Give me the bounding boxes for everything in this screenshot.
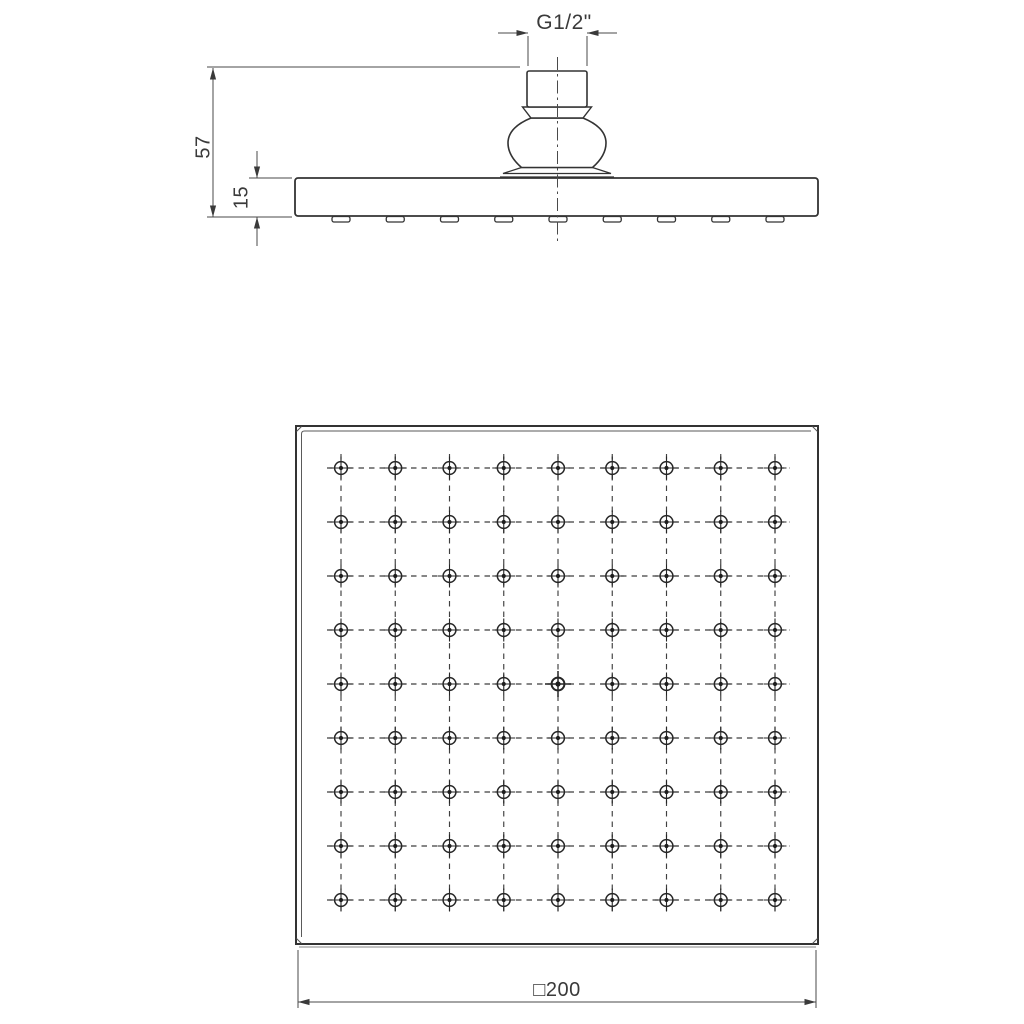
head-plate-side [295,178,818,216]
nozzle [492,781,515,804]
nozzle [384,673,407,696]
thread-arrow-left [517,30,529,36]
face-width-label: □200 [533,979,580,1001]
nozzle [655,565,678,588]
nozzle [384,835,407,858]
nozzle [330,619,353,642]
nozzle [709,781,732,804]
nozzle [438,565,461,588]
nozzle [601,457,624,480]
nozzle [438,457,461,480]
nozzle [764,727,787,750]
nozzle [438,511,461,534]
nozzle [547,835,570,858]
nozzle [547,457,570,480]
thickness-arrow-bottom [254,217,260,229]
side-nozzle-bump [495,217,513,223]
height-arrow-top [210,68,216,80]
nozzle [709,619,732,642]
nozzle [492,457,515,480]
nozzle [438,673,461,696]
nozzle-grid [330,457,787,912]
nozzle [764,565,787,588]
nozzle [492,835,515,858]
nozzle [655,457,678,480]
nozzle [384,457,407,480]
nozzle [545,671,571,697]
nozzle [764,619,787,642]
side-nozzle-bump [603,217,621,223]
nozzle [492,889,515,912]
nozzle [709,511,732,534]
side-nozzle-bump [766,217,784,223]
nozzle [330,781,353,804]
nozzle [655,727,678,750]
nozzle [601,835,624,858]
nozzle [709,673,732,696]
nozzle [438,781,461,804]
nozzle [655,781,678,804]
nozzle [764,511,787,534]
nozzle [655,835,678,858]
overall-height-label: 57 [193,135,215,158]
nozzle [547,727,570,750]
head-thickness-label: 15 [231,186,253,209]
nozzle [764,781,787,804]
bottom-face-view [296,426,818,947]
nozzle [384,727,407,750]
thickness-arrow-top [254,167,260,179]
nozzle [601,619,624,642]
nozzle [384,619,407,642]
width-arrow-right [805,999,817,1005]
nozzle [330,565,353,588]
nozzle [709,727,732,750]
nozzle [547,565,570,588]
nozzle [492,565,515,588]
side-nozzle-bump [386,217,404,223]
nozzle [492,619,515,642]
nozzle [655,889,678,912]
nozzle [601,727,624,750]
dimension-head-thickness: 15 [231,151,293,246]
nozzle [601,781,624,804]
width-arrow-left [298,999,310,1005]
nozzle [764,835,787,858]
nozzle [330,889,353,912]
drawing-page: G1/2" 57 15 [0,0,1024,1024]
nozzle [330,727,353,750]
nozzle [384,781,407,804]
nozzle [655,673,678,696]
nozzle [438,835,461,858]
nozzle [547,889,570,912]
nozzle [330,673,353,696]
nozzle [601,565,624,588]
nozzle [547,619,570,642]
technical-drawing-canvas: G1/2" 57 15 [0,0,1024,1024]
nozzle [384,565,407,588]
nozzle [384,511,407,534]
thread-size-label: G1/2" [536,11,591,34]
nozzle [655,511,678,534]
nozzle [438,619,461,642]
nozzle [709,889,732,912]
side-nozzle-bump [658,217,676,223]
dimension-face-width: □200 [298,950,816,1008]
nozzle [709,457,732,480]
nozzle [547,781,570,804]
nozzle [655,619,678,642]
nozzle [764,457,787,480]
nozzle [601,511,624,534]
side-nozzle-bump [441,217,459,223]
nozzle [492,511,515,534]
nozzle [438,727,461,750]
side-elevation-view [295,57,818,244]
nozzle [384,889,407,912]
side-nozzle-bump [332,217,350,223]
nozzle [709,565,732,588]
nozzle [601,889,624,912]
side-nozzle-bump [712,217,730,223]
nozzle [330,835,353,858]
nozzle [492,673,515,696]
nozzle [601,673,624,696]
nozzle [764,889,787,912]
nozzle [764,673,787,696]
nozzle [438,889,461,912]
nozzle [492,727,515,750]
nozzle [709,835,732,858]
nozzle [330,457,353,480]
nozzle [330,511,353,534]
nozzle [547,511,570,534]
height-arrow-bottom [210,206,216,218]
